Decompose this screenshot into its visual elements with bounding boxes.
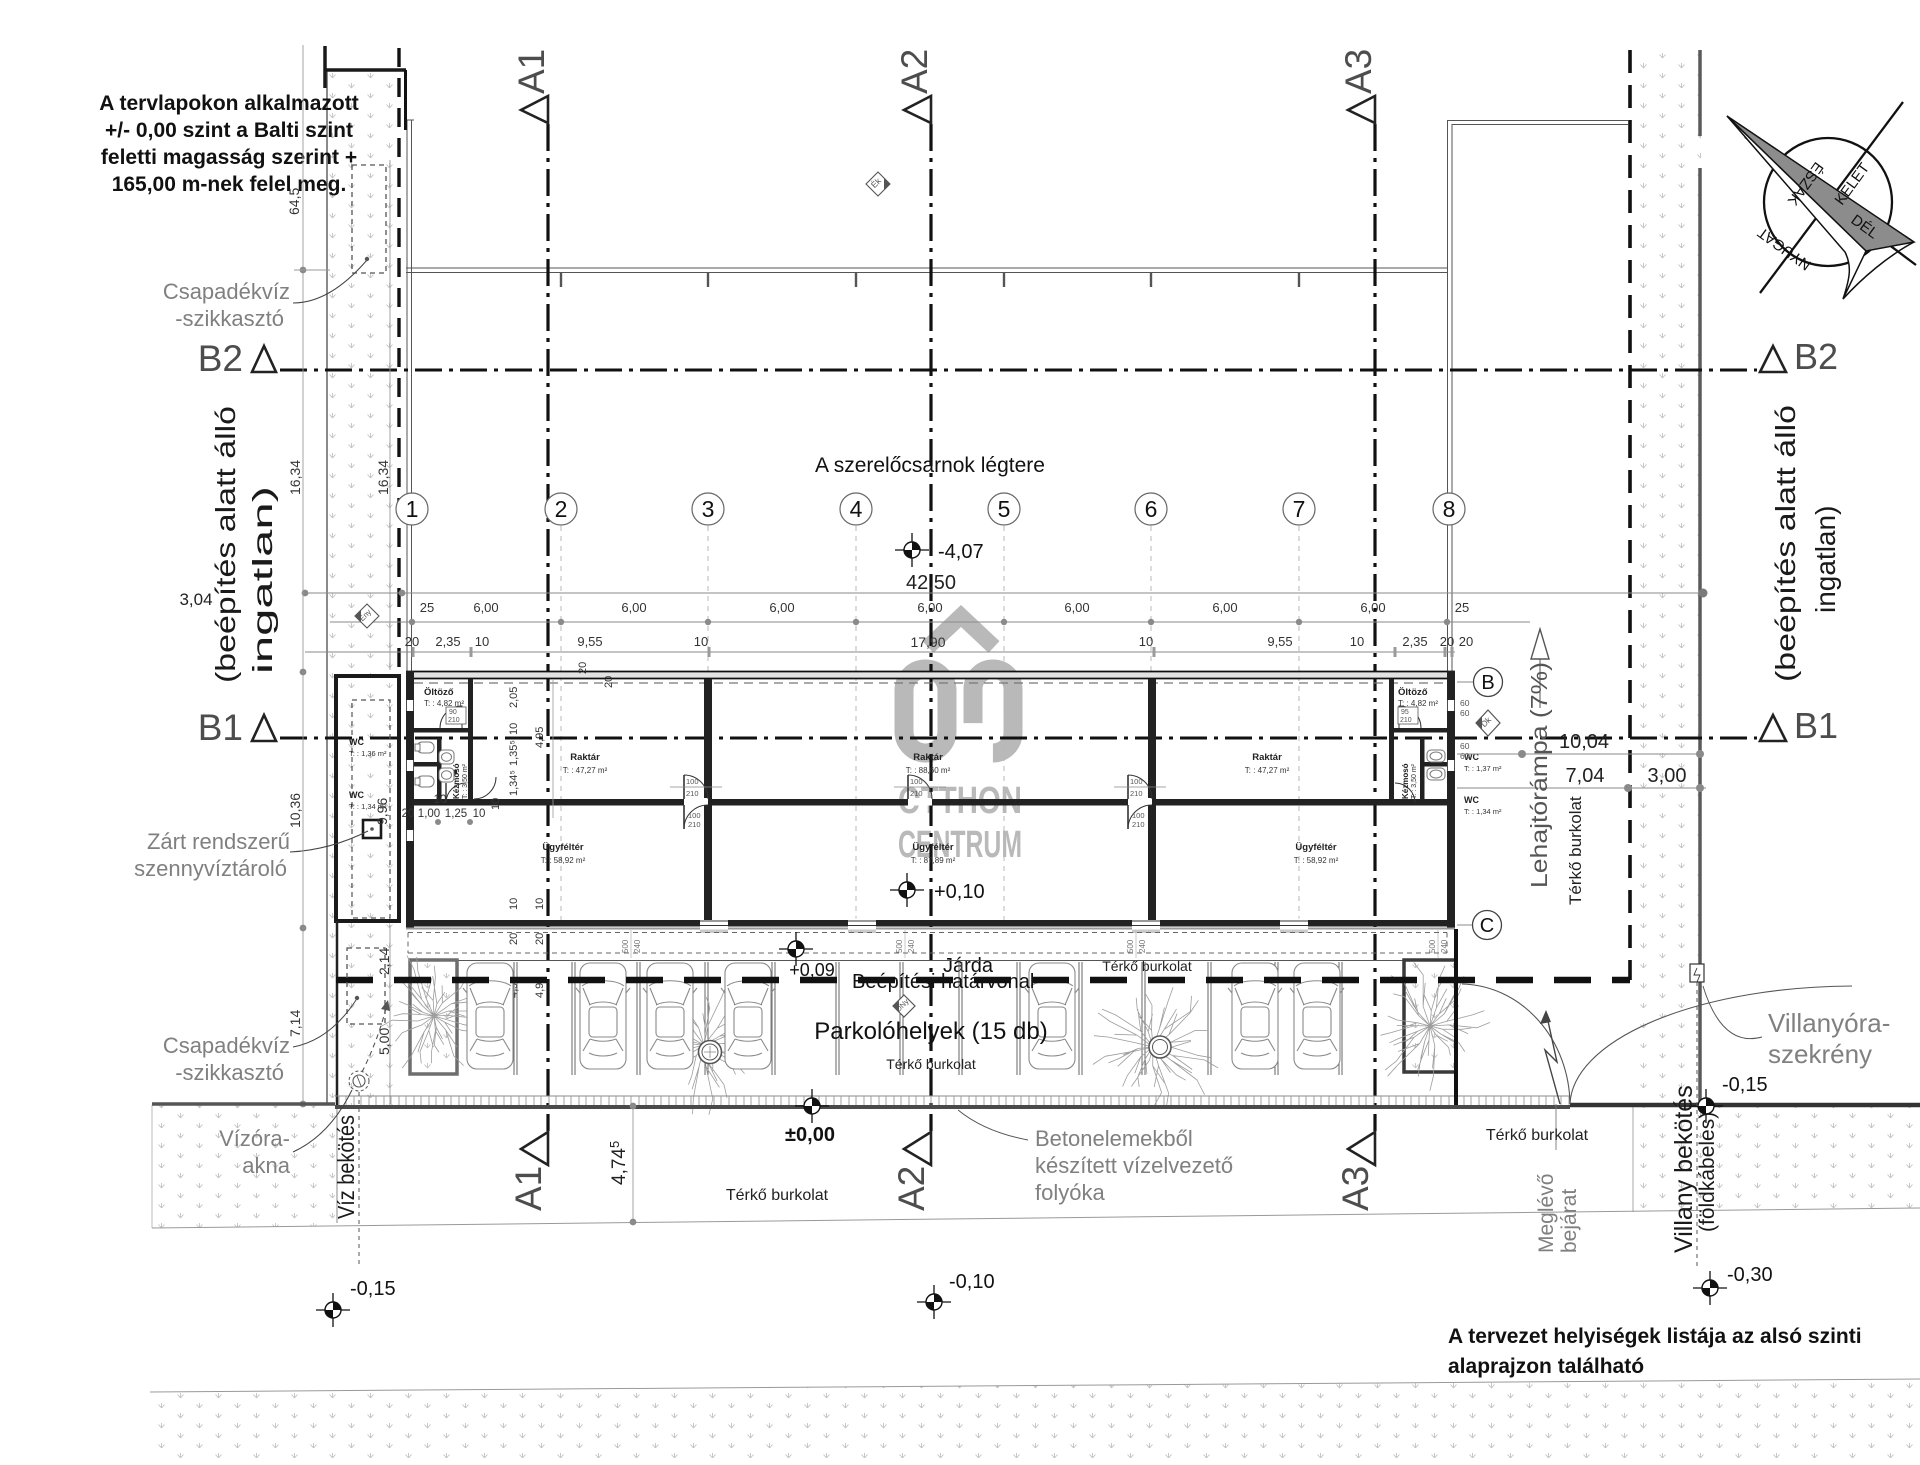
svg-text:1,00: 1,00 — [418, 808, 440, 820]
svg-text:T: : 1,37 m²: T: : 1,37 m² — [1464, 764, 1502, 773]
svg-text:B1: B1 — [1794, 705, 1838, 746]
svg-text:ingatlan): ingatlan) — [247, 486, 278, 674]
svg-text:210: 210 — [1130, 789, 1143, 798]
svg-text:60: 60 — [1460, 741, 1470, 751]
svg-text:A3: A3 — [1335, 1166, 1376, 1211]
svg-text:5,00: 5,00 — [376, 1028, 392, 1055]
svg-text:Raktár: Raktár — [913, 752, 943, 763]
svg-text:-4,07: -4,07 — [938, 541, 984, 563]
svg-text:T: : 88,60 m²: T: : 88,60 m² — [906, 766, 951, 775]
svg-text:6,00: 6,00 — [473, 600, 498, 615]
svg-text:Kézmosó: Kézmosó — [1401, 763, 1410, 799]
svg-text:500: 500 — [1428, 939, 1437, 953]
svg-text:T: : 47,27 m²: T: : 47,27 m² — [563, 766, 608, 775]
svg-text:240: 240 — [1138, 939, 1147, 953]
svg-text:C: C — [1480, 915, 1494, 937]
svg-text:5: 5 — [998, 496, 1011, 522]
svg-text:Víz bekötés: Víz bekötés — [333, 1115, 359, 1219]
svg-text:A2: A2 — [894, 49, 935, 94]
svg-text:±0,00: ±0,00 — [785, 1124, 835, 1146]
svg-text:100: 100 — [688, 811, 701, 820]
svg-text:-szikkasztó: -szikkasztó — [175, 306, 284, 331]
svg-text:210: 210 — [448, 717, 460, 724]
svg-text:+0,10: +0,10 — [934, 881, 985, 903]
svg-text:A2: A2 — [891, 1166, 932, 1211]
svg-text:10,36: 10,36 — [287, 793, 303, 828]
svg-text:4,95: 4,95 — [534, 727, 546, 748]
svg-text:WC: WC — [349, 737, 364, 747]
svg-text:20: 20 — [405, 634, 419, 649]
svg-text:B2: B2 — [198, 338, 243, 379]
svg-text:8: 8 — [1443, 496, 1456, 522]
svg-text:szekrény: szekrény — [1768, 1039, 1872, 1069]
svg-text:T: : 3,50 m²: T: : 3,50 m² — [1411, 763, 1418, 799]
svg-text:16,34: 16,34 — [287, 460, 303, 495]
svg-text:A3: A3 — [1338, 49, 1379, 94]
svg-text:20: 20 — [402, 808, 415, 820]
svg-text:folyóka: folyóka — [1035, 1180, 1105, 1205]
svg-text:4: 4 — [850, 496, 863, 522]
svg-text:B: B — [1481, 672, 1494, 694]
svg-text:10: 10 — [694, 634, 708, 649]
svg-text:(beépítés alatt álló: (beépítés alatt álló — [210, 406, 241, 683]
svg-text:Térkő burkolat: Térkő burkolat — [886, 1056, 976, 1072]
svg-text:Parkolóhelyek (15 db): Parkolóhelyek (15 db) — [814, 1018, 1047, 1045]
svg-text:10: 10 — [475, 634, 489, 649]
svg-text:10: 10 — [508, 898, 520, 910]
svg-text:20: 20 — [534, 933, 546, 945]
svg-text:3,04: 3,04 — [179, 590, 212, 609]
svg-text:1,35⁵: 1,35⁵ — [508, 740, 520, 766]
svg-text:10: 10 — [473, 808, 486, 820]
svg-text:Ügyféltér: Ügyféltér — [542, 842, 583, 853]
svg-text:500: 500 — [621, 939, 630, 953]
svg-text:Kézmosó: Kézmosó — [452, 763, 461, 799]
svg-text:10: 10 — [508, 723, 520, 735]
svg-text:A tervezet helyiségek listája: A tervezet helyiségek listája az alsó sz… — [1448, 1325, 1862, 1348]
svg-text:25: 25 — [420, 600, 434, 615]
svg-text:6,00: 6,00 — [1212, 600, 1237, 615]
svg-text:T: : 58,92 m²: T: : 58,92 m² — [1294, 856, 1339, 865]
svg-text:42,50: 42,50 — [906, 572, 956, 594]
svg-text:B2: B2 — [1794, 336, 1838, 377]
svg-text:T: : 4,82 m²: T: : 4,82 m² — [424, 699, 464, 708]
svg-text:10: 10 — [490, 798, 502, 810]
svg-text:WC: WC — [1464, 795, 1479, 805]
svg-text:+/- 0,00 szint a Balti szint: +/- 0,00 szint a Balti szint — [105, 119, 353, 142]
svg-text:1,25: 1,25 — [445, 808, 467, 820]
svg-text:A1: A1 — [508, 1166, 549, 1211]
svg-text:9,96: 9,96 — [374, 798, 390, 825]
svg-text:Raktár: Raktár — [570, 752, 600, 763]
svg-text:60: 60 — [1460, 708, 1470, 718]
svg-text:2,35: 2,35 — [435, 634, 460, 649]
svg-text:240: 240 — [633, 939, 642, 953]
svg-text:-0,30: -0,30 — [1727, 1264, 1773, 1286]
svg-text:(beépítés alatt álló: (beépítés alatt álló — [1770, 405, 1801, 682]
svg-text:17,90: 17,90 — [910, 634, 945, 650]
svg-text:165,00 m-nek felel meg.: 165,00 m-nek felel meg. — [112, 173, 347, 196]
svg-text:6,00: 6,00 — [621, 600, 646, 615]
svg-text:10: 10 — [1350, 634, 1364, 649]
svg-text:Csapadékvíz: Csapadékvíz — [163, 1033, 290, 1058]
svg-text:szennyvíztároló: szennyvíztároló — [134, 856, 287, 881]
svg-text:90: 90 — [449, 709, 457, 716]
svg-text:210: 210 — [686, 789, 699, 798]
svg-text:3: 3 — [702, 496, 715, 522]
svg-text:7,04: 7,04 — [1566, 765, 1605, 787]
svg-text:100: 100 — [910, 777, 923, 786]
svg-text:T: : 87,89 m²: T: : 87,89 m² — [911, 856, 956, 865]
svg-text:20: 20 — [508, 933, 520, 945]
svg-text:210: 210 — [688, 820, 701, 829]
svg-text:240: 240 — [907, 939, 916, 953]
svg-text:Raktár: Raktár — [1252, 752, 1282, 763]
svg-text:alaprajzon található: alaprajzon található — [1448, 1355, 1644, 1378]
svg-text:Lehajtórámpa (7%): Lehajtórámpa (7%) — [1526, 662, 1552, 888]
svg-text:T: : 58,92 m²: T: : 58,92 m² — [541, 856, 586, 865]
svg-text:500: 500 — [1126, 939, 1135, 953]
svg-text:Betonelemekből: Betonelemekből — [1035, 1126, 1193, 1151]
svg-text:+0,09: +0,09 — [789, 960, 835, 980]
svg-text:210: 210 — [910, 789, 923, 798]
svg-text:6: 6 — [1145, 496, 1158, 522]
svg-text:B1: B1 — [198, 707, 243, 748]
svg-text:6,00: 6,00 — [769, 600, 794, 615]
svg-text:A tervlapokon alkalmazott: A tervlapokon alkalmazott — [99, 92, 358, 115]
svg-text:2,05: 2,05 — [508, 687, 520, 708]
svg-text:20: 20 — [1440, 634, 1454, 649]
svg-text:10: 10 — [434, 794, 447, 806]
svg-text:7: 7 — [1293, 496, 1306, 522]
svg-text:100: 100 — [1130, 777, 1143, 786]
svg-text:Öltöző: Öltöző — [424, 687, 454, 698]
svg-text:T: : 4,82 m²: T: : 4,82 m² — [1398, 699, 1438, 708]
svg-text:3,00: 3,00 — [1648, 765, 1687, 787]
svg-text:210: 210 — [1400, 717, 1412, 724]
svg-text:1: 1 — [406, 496, 419, 522]
svg-text:(földkábeles): (földkábeles) — [1696, 1112, 1719, 1232]
svg-text:A szerelőcsarnok légtere: A szerelőcsarnok légtere — [815, 454, 1045, 477]
svg-text:Térkő burkolat: Térkő burkolat — [1486, 1127, 1589, 1144]
svg-text:100: 100 — [686, 777, 699, 786]
svg-text:T: : 1,34 m²: T: : 1,34 m² — [1464, 807, 1502, 816]
svg-text:16,34: 16,34 — [375, 460, 391, 495]
svg-text:9,55: 9,55 — [1267, 634, 1292, 649]
svg-text:95: 95 — [1401, 709, 1409, 716]
svg-text:25: 25 — [1455, 600, 1469, 615]
svg-text:9,55: 9,55 — [577, 634, 602, 649]
svg-text:Villanyóra-: Villanyóra- — [1768, 1008, 1890, 1038]
svg-text:Csapadékvíz: Csapadékvíz — [163, 279, 290, 304]
svg-text:64,5: 64,5 — [286, 188, 302, 215]
svg-text:készített vízelvezető: készített vízelvezető — [1035, 1153, 1233, 1178]
svg-text:60: 60 — [1460, 751, 1470, 761]
svg-text:2: 2 — [555, 496, 568, 522]
svg-text:20: 20 — [603, 676, 615, 688]
svg-text:feletti magasság szerint +: feletti magasság szerint + — [101, 146, 357, 169]
svg-text:60: 60 — [1460, 698, 1470, 708]
svg-text:T: : 47,27 m²: T: : 47,27 m² — [1245, 766, 1290, 775]
svg-text:WC: WC — [349, 790, 364, 800]
svg-text:-0,15: -0,15 — [1722, 1074, 1768, 1096]
svg-text:6,00: 6,00 — [1064, 600, 1089, 615]
svg-text:ingatlan): ingatlan) — [1810, 506, 1841, 613]
svg-text:-szikkasztó: -szikkasztó — [175, 1060, 284, 1085]
svg-text:Térkő burkolat: Térkő burkolat — [726, 1187, 829, 1204]
svg-text:Meglévő: Meglévő — [1535, 1174, 1558, 1253]
svg-text:240: 240 — [1440, 939, 1449, 953]
svg-text:1,34⁵: 1,34⁵ — [508, 770, 520, 796]
svg-text:Térkő burkolat: Térkő burkolat — [1566, 796, 1585, 905]
svg-text:2,35: 2,35 — [1402, 634, 1427, 649]
svg-text:10: 10 — [534, 898, 546, 910]
svg-text:Villany bekötés: Villany bekötés — [1670, 1085, 1698, 1253]
svg-text:6,00: 6,00 — [1360, 600, 1385, 615]
svg-text:Ügyféltér: Ügyféltér — [912, 842, 953, 853]
svg-text:A1: A1 — [511, 49, 552, 94]
svg-text:-0,10: -0,10 — [949, 1271, 995, 1293]
svg-text:T: : 1,36 m²: T: : 1,36 m² — [349, 749, 387, 758]
svg-text:500: 500 — [895, 939, 904, 953]
svg-text:T: : 3,50 m²: T: : 3,50 m² — [462, 763, 469, 799]
svg-text:akna: akna — [242, 1153, 290, 1178]
svg-text:Vízóra-: Vízóra- — [219, 1126, 290, 1151]
svg-text:210: 210 — [1132, 820, 1145, 829]
svg-text:20: 20 — [577, 662, 589, 674]
svg-text:Ügyféltér: Ügyféltér — [1295, 842, 1336, 853]
svg-text:10,04: 10,04 — [1559, 731, 1609, 753]
svg-text:-0,15: -0,15 — [350, 1278, 396, 1300]
svg-text:20: 20 — [1459, 634, 1473, 649]
svg-text:6,00: 6,00 — [917, 600, 942, 615]
svg-text:2,14: 2,14 — [376, 948, 392, 975]
svg-text:bejárat: bejárat — [1558, 1189, 1581, 1253]
svg-text:100: 100 — [1132, 811, 1145, 820]
svg-text:10: 10 — [1139, 634, 1153, 649]
svg-text:Zárt rendszerű: Zárt rendszerű — [147, 829, 290, 854]
svg-text:Öltöző: Öltöző — [1398, 687, 1428, 698]
